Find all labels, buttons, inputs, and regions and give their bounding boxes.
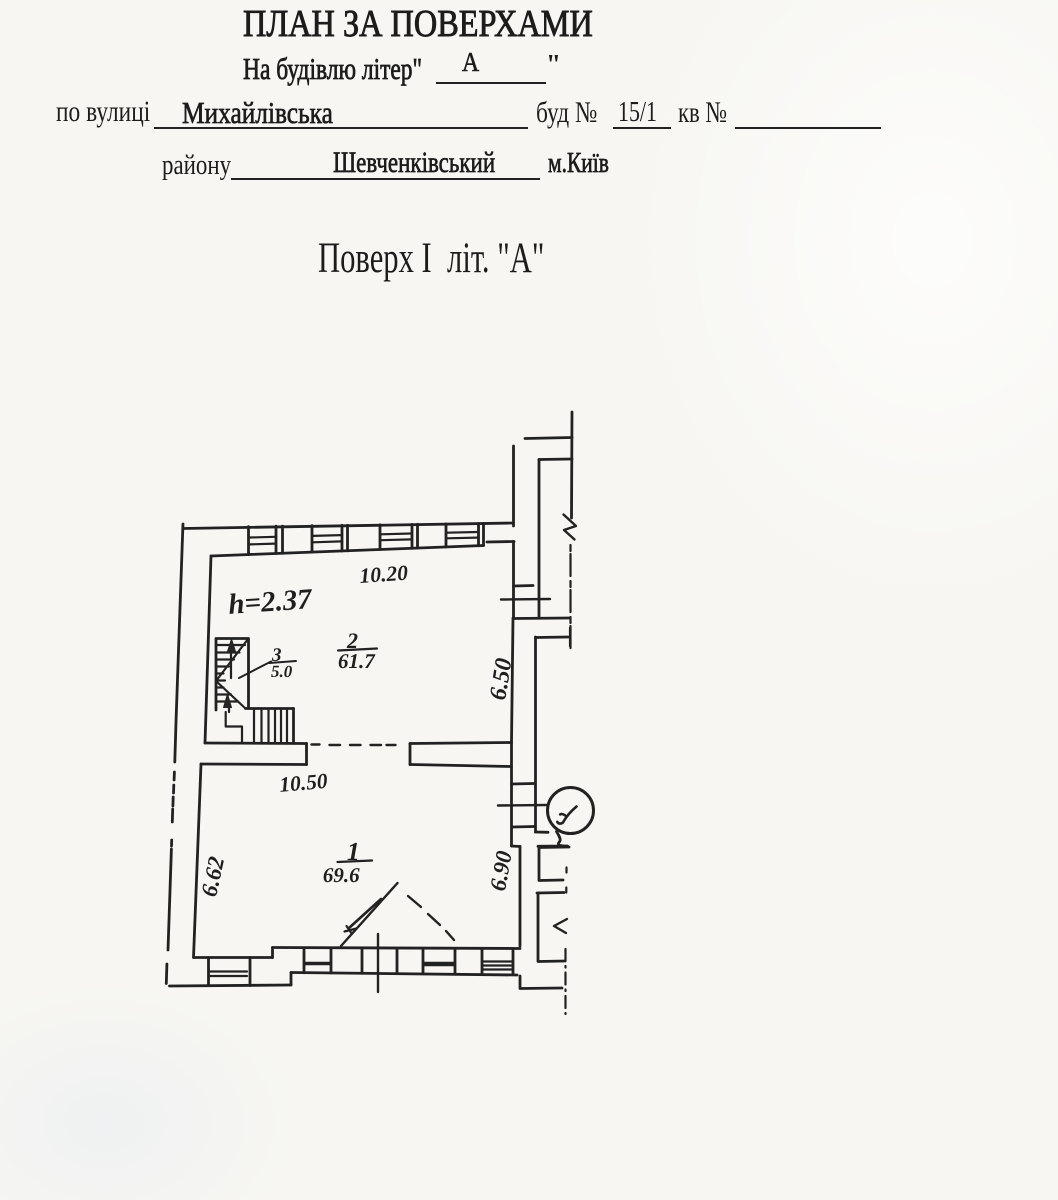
- svg-text:10.50: 10.50: [278, 769, 329, 797]
- svg-text:5.0: 5.0: [271, 662, 293, 681]
- svg-text:61.7: 61.7: [338, 649, 376, 673]
- svg-text:1: 1: [347, 837, 360, 866]
- svg-text:6.90: 6.90: [485, 848, 517, 892]
- svg-text:69.6: 69.6: [323, 863, 360, 887]
- svg-text:6.62: 6.62: [196, 854, 229, 899]
- svg-text:10.20: 10.20: [359, 561, 409, 588]
- svg-text:h=2.37: h=2.37: [227, 583, 314, 621]
